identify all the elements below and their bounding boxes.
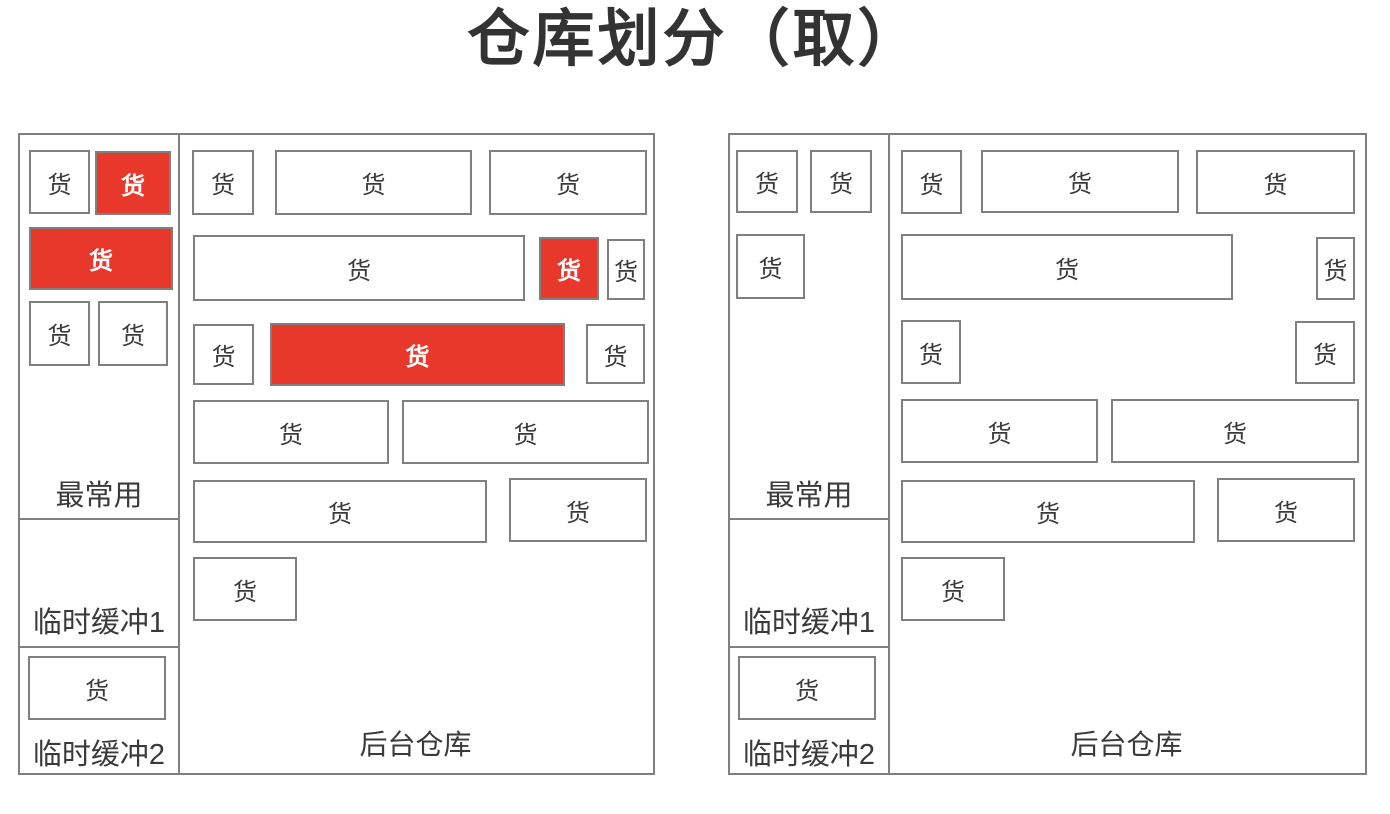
most-used-divider [730,518,888,520]
buffer1-divider [730,646,888,648]
label-buffer2: 临时缓冲2 [730,738,888,772]
buffer2-shelves: 货 [730,135,1365,773]
label-most-used: 最常用 [20,479,178,513]
warehouse-panel-after: 货货货 货货货货货货货货货货货货 货 最常用 临时缓冲1 临时缓冲2 后台仓库 [728,133,1367,775]
page-title: 仓库划分（取） [0,0,1390,80]
buffer2-shelves: 货 [20,135,653,773]
label-back-warehouse: 后台仓库 [178,729,653,761]
most-used-divider [20,518,178,520]
cargo-box: 货 [738,656,876,720]
sidebar-divider [888,135,890,773]
buffer1-divider [20,646,178,648]
label-most-used: 最常用 [730,479,888,513]
label-buffer1: 临时缓冲1 [730,606,888,640]
label-buffer1: 临时缓冲1 [20,606,178,640]
cargo-box: 货 [28,656,166,720]
page: 仓库划分（取） 货货货货货 货货货货货货货货货货货货货货 货 最常用 临时缓冲1… [0,0,1390,814]
warehouse-panel-before: 货货货货货 货货货货货货货货货货货货货货 货 最常用 临时缓冲1 临时缓冲2 后… [18,133,655,775]
label-buffer2: 临时缓冲2 [20,738,178,772]
label-back-warehouse: 后台仓库 [888,729,1365,761]
sidebar-divider [178,135,180,773]
